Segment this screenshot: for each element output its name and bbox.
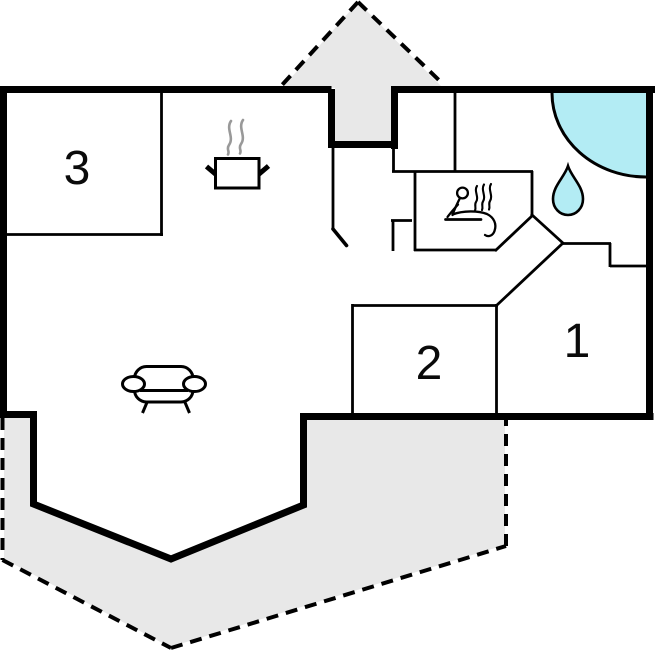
terrace-entry-notch	[335, 88, 391, 144]
room-3-label: 3	[64, 142, 91, 195]
sofa-armrest-right	[184, 377, 206, 392]
floor-plan-svg: 3 2 1	[0, 0, 655, 652]
floor-plan: 3 2 1	[0, 0, 655, 652]
room-2-label: 2	[416, 337, 443, 390]
room-1-label: 1	[564, 315, 591, 368]
person-head	[457, 188, 468, 199]
sofa-armrest-left	[123, 377, 145, 392]
pot-body	[216, 159, 260, 189]
